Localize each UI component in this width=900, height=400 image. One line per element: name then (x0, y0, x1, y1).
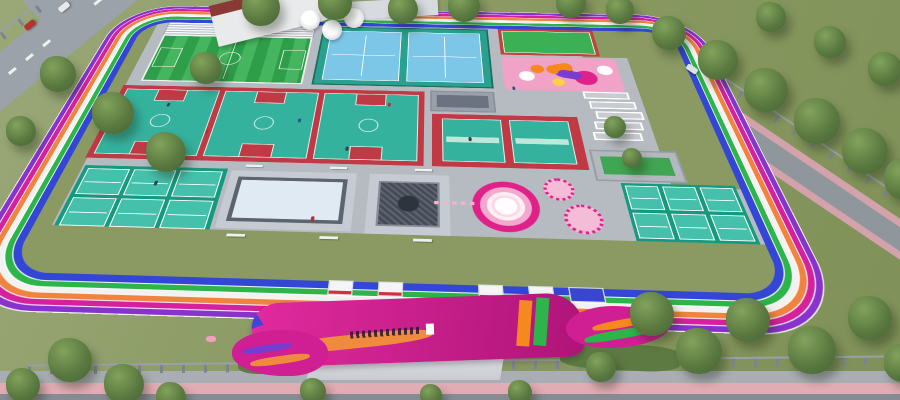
tree (48, 338, 92, 382)
bench (330, 167, 347, 170)
person (468, 137, 471, 141)
bench (413, 239, 432, 242)
playground (501, 57, 626, 93)
basketball-court-block (85, 85, 424, 166)
tree (814, 26, 846, 58)
bench (226, 234, 245, 237)
tree (788, 326, 836, 374)
person (512, 86, 515, 90)
umbrella-canopy (300, 10, 320, 30)
canopy-wing-left (232, 330, 328, 376)
badminton-block-east (621, 183, 761, 244)
person (388, 103, 391, 107)
badminton-court (159, 200, 214, 230)
tree (622, 148, 642, 168)
badminton-court (662, 186, 704, 211)
badminton-court (671, 214, 715, 241)
tree (604, 116, 626, 138)
badminton-court (75, 168, 130, 195)
badminton-court (59, 197, 117, 226)
badminton-court (109, 198, 166, 227)
basketball-court (313, 93, 419, 161)
tree (104, 364, 144, 400)
tree (726, 298, 770, 342)
badminton-court (171, 170, 223, 197)
play-circle-small (542, 178, 577, 201)
slide-icon (557, 69, 582, 80)
entry-sign-board (569, 288, 604, 302)
entry-booth (328, 281, 352, 294)
bench (246, 165, 263, 168)
badminton-court (632, 213, 675, 240)
volleyball-court (509, 120, 578, 164)
canopy-stripe-green (533, 297, 549, 346)
tree (630, 292, 674, 336)
tree (190, 52, 222, 84)
basketball-court (203, 91, 319, 159)
tree (848, 296, 892, 340)
play-circle-small (562, 204, 607, 235)
badminton-court (123, 169, 177, 196)
sports-park-render (0, 0, 900, 400)
volleyball-court-block (432, 114, 589, 170)
track-infield (8, 22, 788, 294)
tree (508, 380, 532, 400)
tree (698, 40, 738, 80)
tennis-court (406, 32, 484, 83)
pergola (582, 92, 630, 100)
bench (319, 236, 338, 239)
canopy-stripe-orange (516, 300, 532, 347)
equipment-pit (432, 92, 494, 112)
pergola (589, 101, 638, 109)
tree (586, 352, 616, 382)
tree (756, 2, 786, 32)
tree (6, 116, 36, 146)
tree (652, 16, 686, 50)
tree (300, 378, 326, 400)
badminton-court (710, 215, 756, 242)
volleyball-court (442, 118, 506, 162)
tree (92, 92, 134, 134)
badminton-court (699, 187, 743, 212)
soccer-goal-box-left (151, 48, 183, 67)
tree (794, 98, 840, 144)
tree (868, 52, 900, 86)
badminton-block-west (54, 165, 228, 229)
tree (6, 368, 40, 400)
play-circle-large (471, 181, 544, 233)
umbrella-canopy (322, 20, 342, 40)
gateball-court (498, 29, 600, 57)
bench (415, 169, 432, 172)
tree (40, 56, 76, 92)
tree (146, 132, 186, 172)
reflecting-pool (215, 170, 358, 231)
tree (744, 68, 788, 112)
soccer-goal-box-right (278, 50, 306, 69)
tree (676, 328, 722, 374)
canopy-logo-mark (426, 323, 434, 334)
tree (420, 384, 442, 400)
trampoline-pit (364, 174, 450, 236)
pink-sculpture (206, 336, 216, 342)
badminton-court (625, 186, 666, 211)
entry-booth (379, 283, 402, 296)
tree (842, 128, 888, 174)
